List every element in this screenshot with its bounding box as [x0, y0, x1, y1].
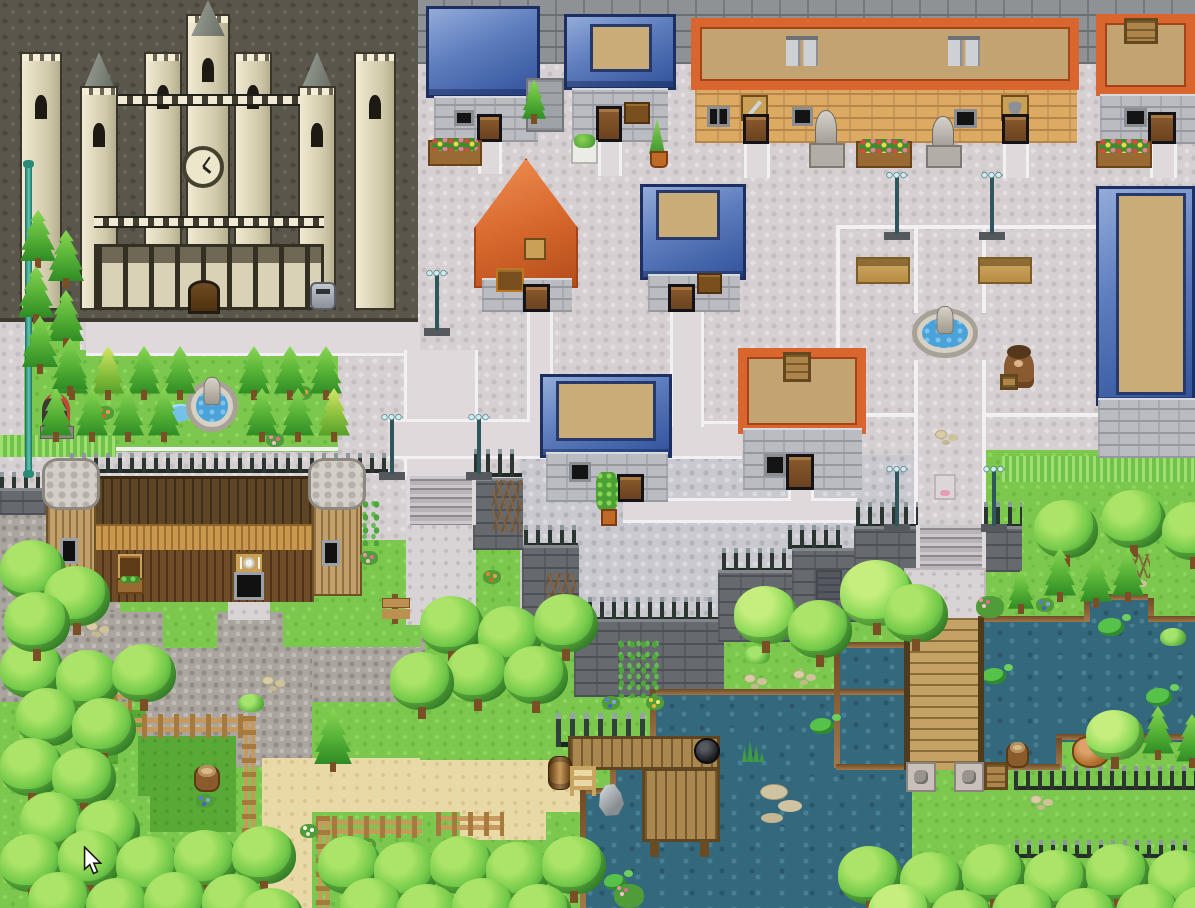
flowers-pink — [614, 884, 644, 908]
house7-sign — [556, 381, 656, 441]
pebbles — [935, 430, 959, 440]
pine-tree — [246, 388, 278, 442]
bridge-gatepost — [954, 762, 984, 792]
river-west — [838, 646, 908, 768]
wall-vine — [616, 638, 660, 698]
house4-window — [1124, 108, 1147, 127]
wood-fence — [126, 714, 252, 738]
house6-door[interactable] — [668, 284, 695, 312]
pebbles — [793, 670, 819, 682]
dock-leg — [650, 840, 659, 857]
tree — [390, 652, 454, 710]
pine-tree — [52, 338, 88, 396]
cathedral-tower — [354, 52, 396, 310]
house6-shutter — [697, 273, 722, 294]
signpost[interactable] — [382, 594, 408, 624]
pine-tree — [1008, 570, 1034, 614]
pine-tree — [1044, 548, 1076, 602]
iron-fence — [722, 548, 792, 572]
lamppost — [979, 168, 1005, 240]
tree — [1102, 490, 1166, 548]
tree — [446, 644, 510, 702]
tree — [884, 584, 948, 642]
potted-tree — [645, 118, 669, 168]
chimney — [786, 36, 818, 66]
tavern-eaves — [94, 524, 314, 552]
tree — [4, 592, 70, 652]
door-path — [1150, 144, 1177, 178]
pine-tree — [148, 388, 180, 442]
tree — [1086, 710, 1144, 760]
bush — [1160, 628, 1186, 646]
house7-door[interactable] — [617, 474, 644, 502]
dormer — [524, 238, 546, 260]
tree — [504, 646, 568, 704]
flower-box — [1096, 141, 1152, 168]
flower-box — [428, 140, 482, 166]
pine-tree — [1112, 548, 1144, 602]
guild-door[interactable] — [1002, 114, 1029, 144]
pine-tree — [1142, 706, 1174, 760]
door-path — [1003, 144, 1029, 178]
tower-door — [322, 540, 340, 566]
shop-roof — [691, 18, 1079, 90]
postbox — [310, 282, 336, 310]
flowers-orange — [483, 570, 501, 584]
house2-sign — [590, 24, 652, 72]
pine-tree — [1176, 714, 1195, 768]
plaza-fountain[interactable] — [912, 308, 978, 358]
hall-base — [1098, 398, 1195, 458]
pebbles — [744, 674, 766, 684]
barrel — [548, 756, 572, 790]
wood-fence — [316, 816, 422, 838]
grass-notch — [163, 612, 217, 648]
tree — [112, 644, 176, 702]
shop-window — [954, 109, 977, 128]
crenellation — [118, 94, 300, 106]
lamppost — [884, 168, 910, 240]
dead-bush — [492, 480, 522, 532]
lamppost — [466, 410, 492, 480]
pole-knob — [23, 160, 34, 168]
pebbles — [1030, 795, 1054, 805]
pine-tree — [1080, 554, 1112, 608]
bridge-gatepost — [906, 762, 936, 792]
shore — [1148, 616, 1195, 622]
shop-window — [707, 106, 730, 127]
dock-steps — [570, 766, 596, 796]
wall-vine — [360, 498, 380, 546]
house8-window — [764, 454, 786, 476]
window-box — [116, 578, 144, 594]
lamppost — [981, 462, 1007, 532]
pine-tree — [282, 388, 314, 442]
house5-door[interactable] — [523, 284, 550, 312]
hedge-path — [138, 736, 236, 796]
planter — [571, 140, 598, 164]
hall-sign — [1116, 193, 1186, 395]
tavern-tower-cap — [308, 458, 366, 510]
flowers-blue — [196, 794, 214, 808]
roof-crate — [783, 352, 811, 382]
merchant-crate — [1000, 374, 1018, 390]
tree-stump — [1006, 743, 1029, 768]
dock-leg — [700, 840, 709, 857]
lily-pad — [810, 718, 834, 734]
bench[interactable] — [978, 257, 1032, 284]
potted-plant — [596, 472, 618, 526]
flower-box — [856, 141, 912, 168]
pine-tree — [318, 388, 350, 442]
pine-tree — [76, 388, 108, 442]
bush — [238, 694, 264, 712]
tavern-tower-cap — [42, 458, 100, 510]
statue — [809, 110, 841, 168]
stairs-west[interactable] — [406, 476, 476, 525]
pebbles — [262, 676, 284, 686]
clock — [182, 146, 224, 188]
flowers-pink — [360, 551, 378, 565]
wood-fence — [436, 812, 504, 836]
lily-pad — [1146, 688, 1172, 706]
pine-tree — [40, 388, 72, 442]
wall-patch — [816, 570, 842, 600]
house8-door[interactable] — [786, 454, 814, 490]
chimney — [948, 36, 980, 66]
flowers-pink — [976, 596, 1004, 618]
flowers-yellow — [646, 696, 664, 710]
shrine-tile — [934, 474, 956, 500]
iron-fence — [524, 525, 578, 547]
tree — [542, 836, 606, 894]
house5-roof — [474, 158, 578, 288]
iron-fence — [788, 525, 842, 549]
tree-stump — [194, 766, 220, 792]
hedge-path — [150, 794, 236, 832]
house4-door[interactable] — [1148, 112, 1176, 144]
house6-sign — [656, 190, 720, 240]
roof-crate — [1124, 18, 1158, 44]
house2-door[interactable] — [596, 106, 622, 142]
game-map[interactable] — [0, 0, 1195, 908]
cauldron — [694, 738, 720, 764]
crate — [984, 762, 1008, 790]
pine-tree — [112, 388, 144, 442]
lamppost — [884, 462, 910, 532]
crenellation — [94, 216, 324, 228]
door-path — [788, 489, 814, 501]
restaurant-sign[interactable] — [234, 552, 264, 574]
curb — [914, 229, 918, 313]
cathedral-door[interactable] — [188, 280, 220, 314]
house5-window — [496, 268, 524, 292]
shore — [836, 764, 908, 770]
flowers-white — [300, 824, 318, 838]
tavern-roof — [90, 476, 318, 528]
tree — [534, 594, 598, 652]
shore — [650, 689, 912, 695]
retaining-wall — [984, 526, 1022, 572]
door-path — [598, 142, 622, 176]
lamppost — [424, 266, 450, 336]
flowers-blue — [602, 696, 620, 710]
pine-tree — [314, 708, 352, 772]
stairs-bridge[interactable] — [916, 525, 986, 573]
pole-knob — [23, 470, 34, 478]
bench[interactable] — [856, 257, 910, 284]
dock-pier[interactable] — [642, 768, 720, 842]
lamppost — [379, 410, 405, 480]
shore — [834, 642, 840, 768]
iron-fence — [576, 597, 722, 621]
lily-pad — [1098, 618, 1124, 636]
weapon-shop-door[interactable] — [743, 114, 769, 144]
house1-window — [454, 110, 474, 126]
pine-tree — [522, 80, 546, 124]
door-path — [744, 144, 770, 178]
stepping-stones — [760, 784, 804, 824]
avenue — [670, 308, 704, 427]
lily-pad — [982, 668, 1006, 684]
tall-grass — [1002, 456, 1195, 482]
restaurant-door[interactable] — [234, 572, 264, 600]
house1-door[interactable] — [477, 114, 502, 142]
house7-window — [569, 462, 591, 482]
curb — [984, 413, 1100, 417]
